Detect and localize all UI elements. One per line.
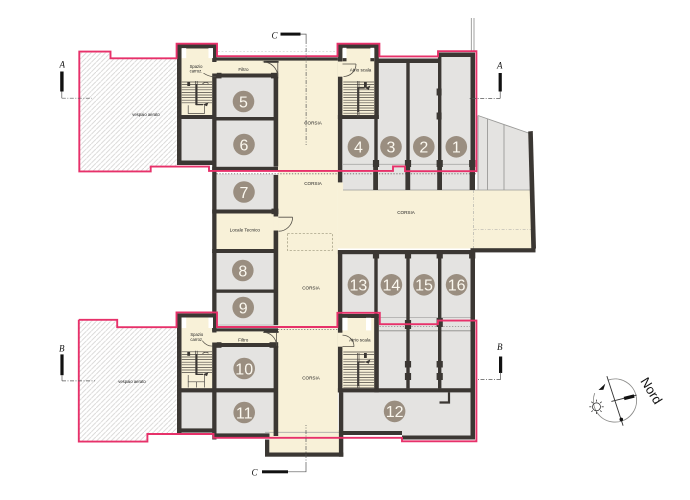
svg-text:3: 3 xyxy=(387,140,396,157)
svg-text:Filtro: Filtro xyxy=(238,337,249,342)
svg-text:12: 12 xyxy=(386,404,404,421)
svg-text:Atrio scala: Atrio scala xyxy=(349,338,371,343)
svg-text:8: 8 xyxy=(238,263,247,280)
svg-text:B: B xyxy=(59,344,65,354)
svg-text:A: A xyxy=(496,61,503,71)
svg-text:Filtro: Filtro xyxy=(238,67,249,72)
svg-text:7: 7 xyxy=(240,185,249,202)
svg-text:Locale Tecnico: Locale Tecnico xyxy=(230,228,261,233)
svg-text:14: 14 xyxy=(383,278,401,295)
svg-text:CORSIA: CORSIA xyxy=(302,286,321,291)
svg-text:Atrio scala: Atrio scala xyxy=(350,67,372,72)
svg-text:CORSIA: CORSIA xyxy=(304,181,323,186)
svg-text:CORSIA: CORSIA xyxy=(302,376,321,381)
svg-text:CORSIA: CORSIA xyxy=(304,121,323,126)
svg-text:9: 9 xyxy=(239,300,248,317)
svg-text:A: A xyxy=(59,60,66,70)
svg-text:CORSIA: CORSIA xyxy=(397,210,416,215)
svg-text:11: 11 xyxy=(236,405,253,422)
svg-text:2: 2 xyxy=(419,140,428,157)
svg-text:4: 4 xyxy=(354,140,363,157)
svg-text:13: 13 xyxy=(350,278,368,295)
svg-text:1: 1 xyxy=(452,140,461,157)
svg-text:carroz.: carroz. xyxy=(190,69,203,74)
svg-text:C: C xyxy=(272,31,279,41)
svg-text:6: 6 xyxy=(240,137,249,154)
svg-text:10: 10 xyxy=(235,361,253,378)
svg-text:vespaio aerato: vespaio aerato xyxy=(118,379,146,384)
svg-text:15: 15 xyxy=(415,278,433,295)
svg-text:vespaio aerato: vespaio aerato xyxy=(132,112,160,117)
svg-text:16: 16 xyxy=(448,278,466,295)
svg-text:B: B xyxy=(497,342,503,352)
svg-text:C: C xyxy=(252,468,259,478)
svg-text:carroz.: carroz. xyxy=(190,337,203,342)
svg-text:5: 5 xyxy=(239,94,248,111)
